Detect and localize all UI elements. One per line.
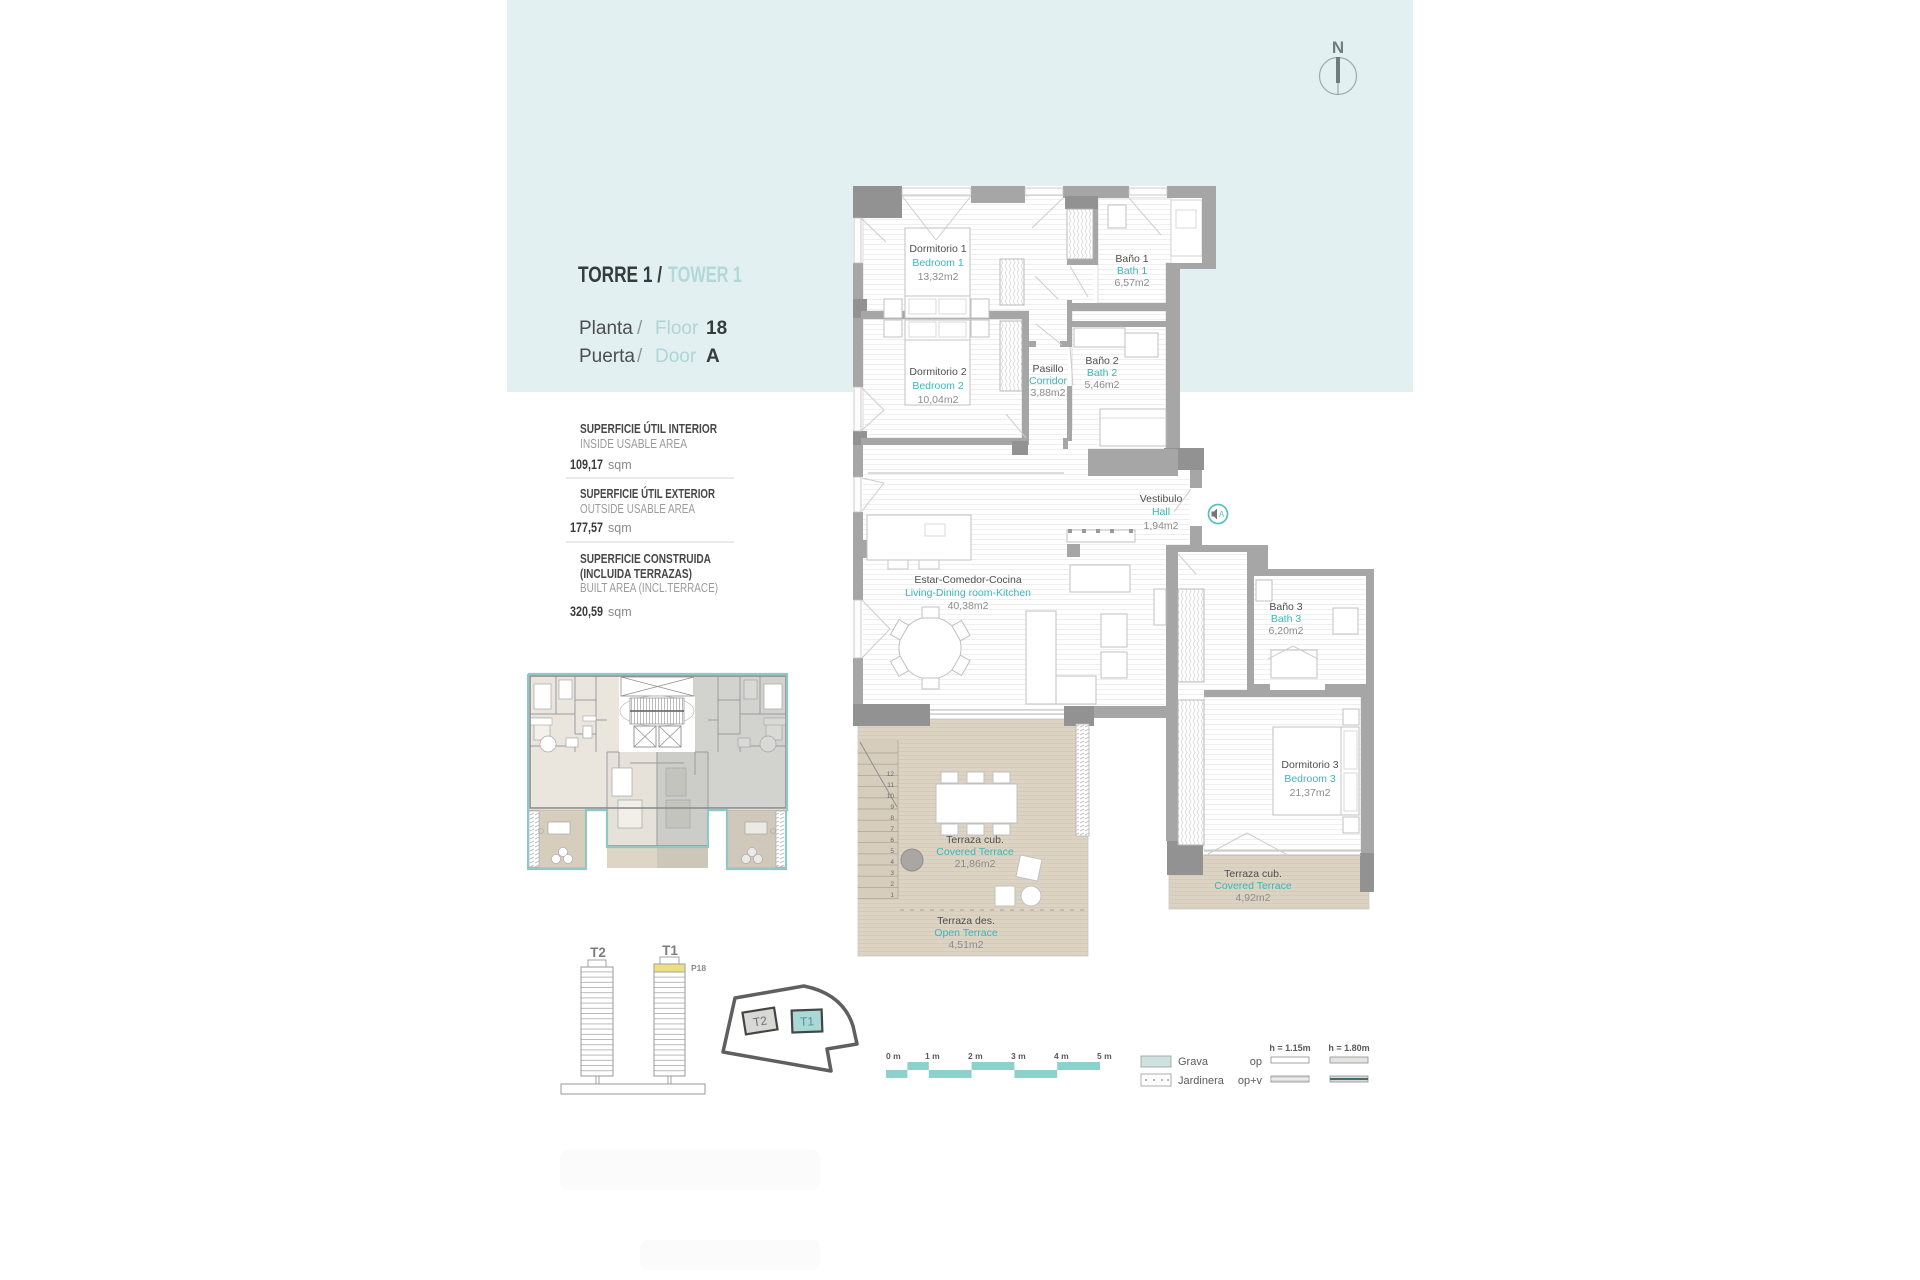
svg-text:12: 12 (887, 771, 895, 778)
svg-text:Pasillo: Pasillo (1033, 363, 1064, 375)
svg-text:4: 4 (890, 859, 894, 866)
svg-text:T2: T2 (590, 945, 606, 960)
svg-text:Jardinera: Jardinera (1178, 1075, 1225, 1087)
svg-text:Bedroom 2: Bedroom 2 (912, 380, 964, 392)
svg-text:Vestibulo: Vestibulo (1140, 493, 1183, 505)
svg-text:SUPERFICIE CONSTRUIDA: SUPERFICIE CONSTRUIDA (580, 551, 711, 566)
svg-text:Dormitorio 2: Dormitorio 2 (909, 366, 966, 378)
svg-text:Bedroom 3: Bedroom 3 (1284, 773, 1336, 785)
svg-text:13,32m2: 13,32m2 (918, 271, 959, 283)
svg-text:h = 1.80m: h = 1.80m (1328, 1043, 1369, 1053)
svg-text:Bath 1: Bath 1 (1117, 265, 1148, 277)
svg-text:6,57m2: 6,57m2 (1114, 277, 1149, 289)
svg-text:9: 9 (890, 804, 894, 811)
svg-text:P18: P18 (691, 963, 706, 973)
svg-text:op: op (1250, 1056, 1262, 1068)
svg-text:Dormitorio 3: Dormitorio 3 (1281, 759, 1338, 771)
svg-text:INSIDE USABLE AREA: INSIDE USABLE AREA (580, 436, 687, 451)
svg-text:1: 1 (890, 892, 894, 899)
svg-text:109,17: 109,17 (570, 457, 603, 472)
svg-text:Baño 1: Baño 1 (1115, 253, 1148, 265)
svg-text:Estar-Comedor-Cocina: Estar-Comedor-Cocina (914, 574, 1022, 586)
svg-text:Corridor: Corridor (1029, 375, 1067, 387)
svg-text:h = 1.15m: h = 1.15m (1269, 1043, 1310, 1053)
svg-text:1,94m2: 1,94m2 (1143, 520, 1178, 532)
svg-text:Terraza cub.: Terraza cub. (1224, 868, 1282, 880)
svg-text:Baño 3: Baño 3 (1269, 601, 1302, 613)
svg-text:op+v: op+v (1238, 1075, 1263, 1087)
svg-text:3: 3 (890, 870, 894, 877)
svg-text:Bath 3: Bath 3 (1271, 613, 1302, 625)
svg-text:TOWER 1: TOWER 1 (668, 262, 742, 287)
svg-text:177,57: 177,57 (570, 520, 603, 535)
svg-text:320,59: 320,59 (570, 604, 603, 619)
svg-text:8: 8 (890, 815, 894, 822)
svg-text:SUPERFICIE ÚTIL EXTERIOR: SUPERFICIE ÚTIL EXTERIOR (580, 486, 715, 501)
svg-text:OUTSIDE USABLE AREA: OUTSIDE USABLE AREA (580, 501, 695, 516)
svg-text:5 m: 5 m (1097, 1051, 1112, 1061)
svg-text:4,92m2: 4,92m2 (1235, 892, 1270, 904)
svg-text:11: 11 (887, 782, 894, 789)
svg-text:TORRE 1 /: TORRE 1 / (578, 262, 662, 287)
svg-text:Baño 2: Baño 2 (1085, 355, 1118, 367)
svg-text:Grava: Grava (1178, 1056, 1209, 1068)
svg-text:Covered Terrace: Covered Terrace (936, 846, 1014, 858)
svg-text:2: 2 (890, 881, 894, 888)
svg-text:BUILT AREA (INCL.TERRACE): BUILT AREA (INCL.TERRACE) (580, 580, 718, 595)
svg-text:Open Terrace: Open Terrace (934, 927, 998, 939)
svg-text:sqm: sqm (608, 605, 632, 619)
svg-text:Terraza cub.: Terraza cub. (946, 834, 1004, 846)
svg-text:7: 7 (890, 826, 894, 833)
svg-text:0 m: 0 m (886, 1051, 901, 1061)
svg-text:T2: T2 (752, 1013, 768, 1029)
svg-text:SUPERFICIE ÚTIL INTERIOR: SUPERFICIE ÚTIL INTERIOR (580, 421, 717, 436)
svg-text:6: 6 (890, 837, 894, 844)
svg-text:T1: T1 (800, 1014, 815, 1028)
svg-text:A: A (1219, 510, 1225, 519)
svg-text:4,51m2: 4,51m2 (948, 939, 983, 951)
svg-text:T1: T1 (662, 943, 678, 958)
svg-text:21,37m2: 21,37m2 (1290, 787, 1331, 799)
svg-text:N: N (1332, 38, 1344, 57)
svg-text:3 m: 3 m (1011, 1051, 1026, 1061)
svg-text:40,38m2: 40,38m2 (948, 600, 989, 612)
svg-text:6,20m2: 6,20m2 (1268, 625, 1303, 637)
svg-text:4 m: 4 m (1054, 1051, 1069, 1061)
svg-text:5: 5 (890, 848, 894, 855)
svg-text:Bath 2: Bath 2 (1087, 367, 1118, 379)
svg-text:sqm: sqm (608, 458, 632, 472)
svg-text:1 m: 1 m (925, 1051, 940, 1061)
svg-text:5,46m2: 5,46m2 (1084, 379, 1119, 391)
svg-text:3,88m2: 3,88m2 (1030, 387, 1065, 399)
svg-text:Bedroom 1: Bedroom 1 (912, 257, 964, 269)
svg-text:Terraza des.: Terraza des. (937, 915, 995, 927)
svg-text:2 m: 2 m (968, 1051, 983, 1061)
svg-text:sqm: sqm (608, 521, 632, 535)
svg-text:(INCLUIDA TERRAZAS): (INCLUIDA TERRAZAS) (580, 566, 692, 581)
svg-text:Covered Terrace: Covered Terrace (1214, 880, 1292, 892)
svg-text:10: 10 (887, 793, 895, 800)
svg-text:21,86m2: 21,86m2 (955, 858, 996, 870)
svg-text:Dormitorio 1: Dormitorio 1 (909, 243, 966, 255)
svg-text:10,04m2: 10,04m2 (918, 394, 959, 406)
svg-text:Hall: Hall (1152, 506, 1170, 518)
svg-text:Living-Dining room-Kitchen: Living-Dining room-Kitchen (905, 587, 1031, 599)
